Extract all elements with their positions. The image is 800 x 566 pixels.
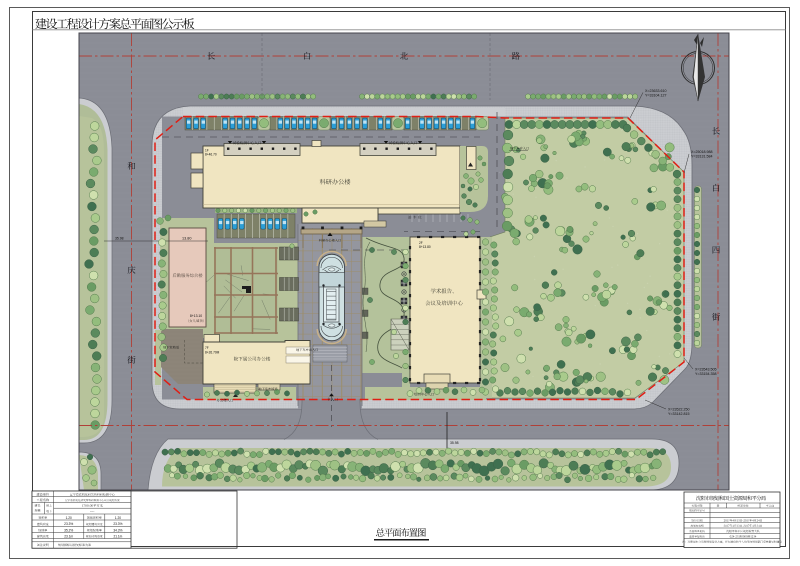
svg-text:X=25018.988: X=25018.988 <box>691 150 712 154</box>
svg-text:X=23633.610: X=23633.610 <box>645 89 666 93</box>
svg-text:34.3%: 34.3% <box>113 528 122 532</box>
svg-text:35.98: 35.98 <box>115 237 124 241</box>
svg-text:1.20: 1.20 <box>115 516 121 520</box>
svg-text:21.1m: 21.1m <box>113 534 122 538</box>
svg-text:X=23522.250: X=23522.250 <box>668 408 689 412</box>
svg-text:Y=33104.127: Y=33104.127 <box>645 94 666 98</box>
svg-text:Y=33131.584: Y=33131.584 <box>691 155 712 159</box>
svg-text:X=23543.505: X=23543.505 <box>695 368 716 372</box>
svg-text:1.20: 1.20 <box>66 516 72 520</box>
svg-text:----: ---- <box>90 509 94 513</box>
svg-text:8+26.70M: 8+26.70M <box>205 351 220 355</box>
svg-text:13.80: 13.80 <box>182 237 192 241</box>
svg-text:8+46.70: 8+46.70 <box>205 153 217 157</box>
svg-text:7F: 7F <box>205 346 209 350</box>
svg-text:35.98: 35.98 <box>450 441 459 445</box>
svg-text:23.3%: 23.3% <box>113 522 122 526</box>
svg-text:Y=33154.358: Y=33154.358 <box>695 372 716 376</box>
svg-text:23.1m: 23.1m <box>64 534 73 538</box>
svg-text:8+13.80: 8+13.80 <box>419 245 431 249</box>
svg-text:Y=33142.815: Y=33142.815 <box>668 412 689 416</box>
svg-text:23.3%: 23.3% <box>64 522 73 526</box>
svg-text:35.2%: 35.2% <box>64 528 73 532</box>
svg-text:8+13.10: 8+13.10 <box>190 314 202 318</box>
